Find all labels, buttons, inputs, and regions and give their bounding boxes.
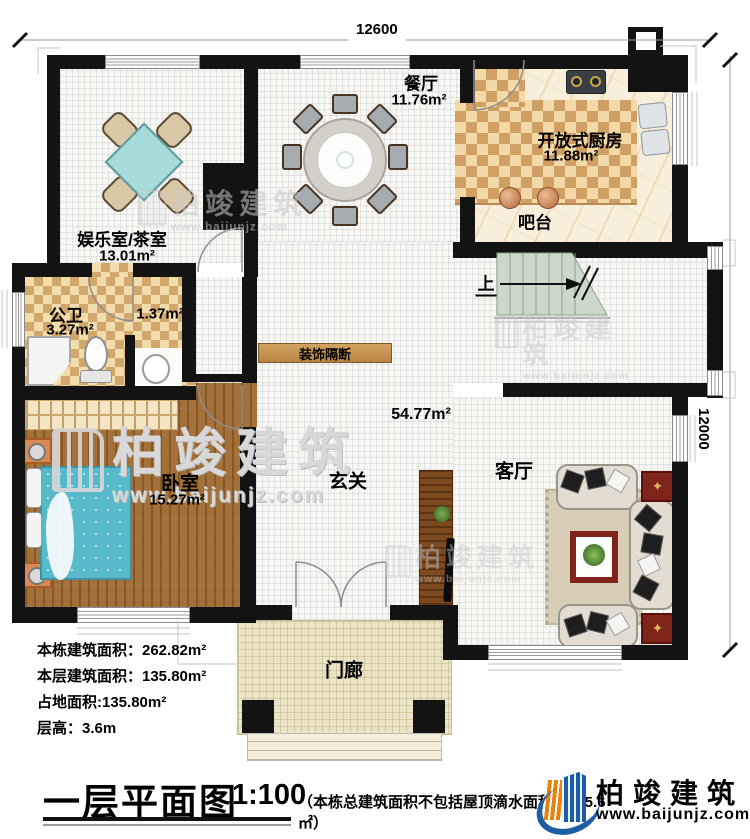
closet-pocket-floor bbox=[196, 277, 242, 383]
wall bbox=[12, 263, 92, 277]
window bbox=[300, 55, 410, 69]
room-label-bar: 吧台 bbox=[518, 209, 552, 234]
window bbox=[12, 292, 25, 347]
dining-table-center bbox=[336, 151, 354, 169]
wall bbox=[125, 335, 135, 386]
dimension-width: 12600 bbox=[352, 21, 402, 38]
wall bbox=[244, 230, 258, 277]
room-area-bedroom: 15.27m² bbox=[149, 492, 205, 509]
window bbox=[488, 645, 622, 660]
wall bbox=[200, 55, 300, 69]
kitchen-sink bbox=[637, 102, 670, 155]
cabinet-plant bbox=[434, 506, 450, 522]
room-label-living: 客厅 bbox=[495, 457, 533, 484]
bathroom-door-gap bbox=[92, 263, 133, 277]
dining-chair bbox=[388, 144, 408, 170]
room-area-dining: 11.76m² bbox=[391, 92, 446, 109]
chimney-flue bbox=[636, 32, 656, 50]
title-underline-shadow bbox=[43, 824, 291, 826]
dining-chair bbox=[282, 144, 302, 170]
window bbox=[77, 607, 190, 623]
wash-basin bbox=[142, 354, 170, 384]
wall bbox=[672, 397, 688, 415]
dining-chair bbox=[332, 206, 358, 226]
sofa-pillow bbox=[584, 467, 607, 490]
title-underline bbox=[43, 817, 291, 821]
wall bbox=[672, 69, 688, 92]
room-area-tearoom: 13.01m² bbox=[99, 248, 155, 265]
window bbox=[707, 246, 723, 270]
brand-logo-icon bbox=[538, 768, 596, 830]
wall bbox=[443, 645, 488, 660]
wall bbox=[460, 197, 475, 242]
table-plant bbox=[583, 544, 605, 566]
toilet-tank bbox=[80, 370, 112, 383]
coffee-table bbox=[570, 531, 618, 583]
room-area-basin: 1.37m² bbox=[136, 306, 184, 323]
porch-steps bbox=[247, 733, 442, 761]
wall bbox=[133, 263, 196, 277]
info-line: 本栋建筑面积：262.82m² bbox=[37, 638, 206, 664]
stove-burner bbox=[571, 76, 582, 87]
porch-column bbox=[413, 700, 445, 733]
wall bbox=[460, 55, 475, 103]
wall bbox=[242, 277, 257, 383]
room-area-kitchen: 11.88m² bbox=[543, 148, 598, 165]
room-label-porch: 门廊 bbox=[325, 656, 363, 683]
toilet-bowl bbox=[84, 336, 108, 372]
window bbox=[707, 370, 723, 396]
stair-bump-floor bbox=[672, 258, 707, 383]
hall-area-label: 54.77m² bbox=[391, 406, 451, 424]
wall bbox=[622, 645, 688, 660]
dining-chair bbox=[332, 94, 358, 114]
window bbox=[672, 415, 688, 462]
stairs-up-label: 上 bbox=[476, 270, 497, 297]
wall bbox=[182, 277, 196, 378]
window bbox=[672, 92, 688, 165]
room-label-entry: 玄关 bbox=[329, 467, 367, 494]
nightstand bbox=[22, 438, 52, 464]
bed-pillow bbox=[26, 512, 42, 548]
room-area-bathroom: 3.27m² bbox=[46, 322, 94, 339]
decor-partition: 装饰隔断 bbox=[258, 343, 392, 363]
wall bbox=[672, 165, 688, 258]
bedroom-door-nook bbox=[196, 383, 257, 427]
info-line: 占地面积:135.80m² bbox=[37, 690, 206, 716]
wall bbox=[182, 374, 242, 382]
wall bbox=[47, 69, 60, 263]
dimension-height: 12000 bbox=[695, 404, 712, 454]
wall bbox=[12, 386, 196, 400]
bed-fold bbox=[46, 492, 74, 580]
wall bbox=[203, 163, 258, 230]
decor-partition-label: 装饰隔断 bbox=[299, 344, 351, 363]
building-info: 本栋建筑面积：262.82m² 本层建筑面积：135.80m² 占地面积:135… bbox=[37, 638, 206, 742]
porch-column bbox=[242, 700, 274, 733]
wall bbox=[240, 427, 256, 607]
wall bbox=[47, 55, 105, 69]
side-table: ✦ bbox=[641, 471, 674, 502]
wall bbox=[244, 605, 292, 620]
info-line: 层高：3.6m bbox=[37, 716, 206, 742]
wall bbox=[672, 462, 688, 660]
wall bbox=[503, 383, 723, 397]
sofa-pillow bbox=[640, 532, 663, 555]
plan-scale: 1:100 bbox=[232, 779, 306, 812]
brand-url: www.baijunjz.com bbox=[596, 806, 750, 824]
kitchen-door-checker bbox=[475, 69, 525, 107]
side-table: ✦ bbox=[641, 613, 674, 644]
bar-stool bbox=[499, 187, 521, 209]
bed-pillow bbox=[26, 468, 42, 508]
info-line: 本层建筑面积：135.80m² bbox=[37, 664, 206, 690]
floor-plan: 装饰隔断 ✦ ✦ bbox=[0, 0, 750, 839]
window bbox=[105, 55, 200, 69]
stove-burner bbox=[590, 76, 601, 87]
wardrobe bbox=[25, 400, 178, 430]
wall bbox=[443, 618, 458, 648]
bar-stool bbox=[537, 187, 559, 209]
